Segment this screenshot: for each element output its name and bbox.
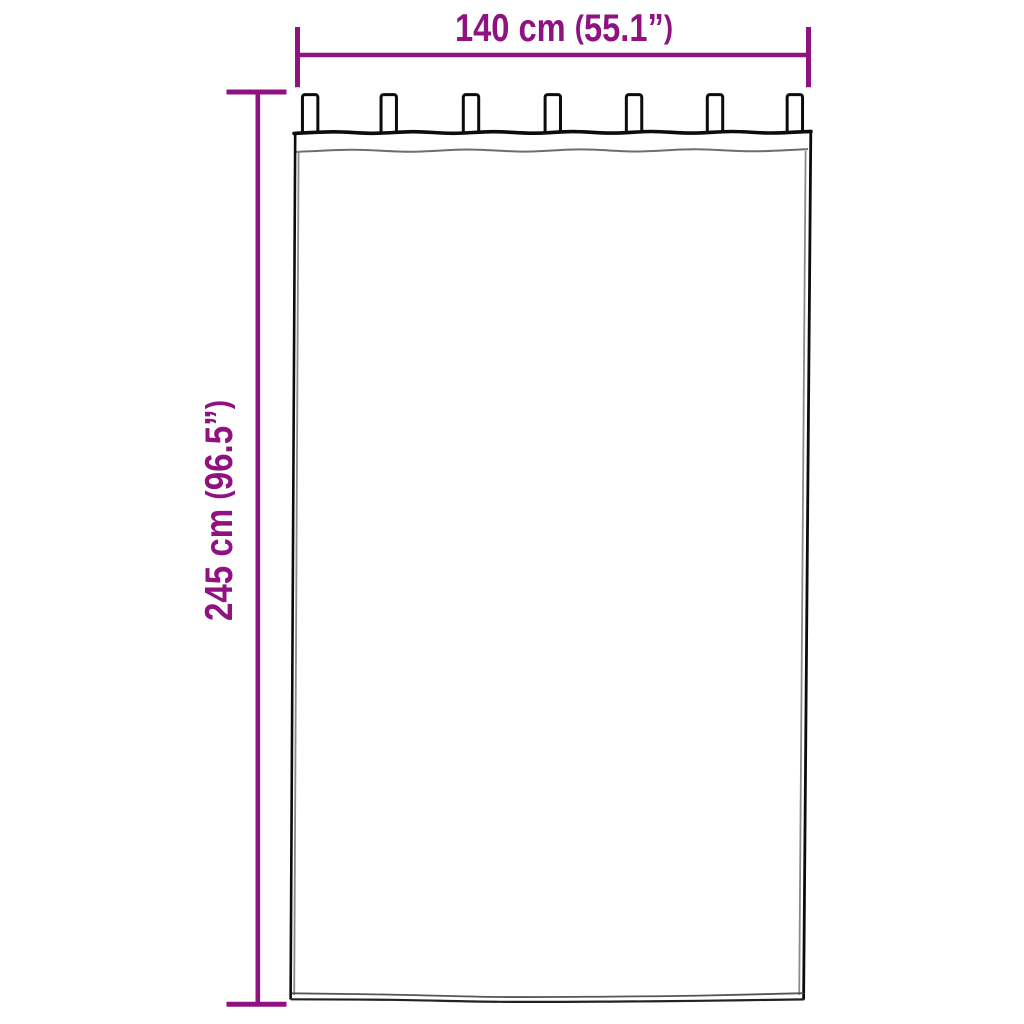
svg-text:245 cm (96.5”): 245 cm (96.5”) [198, 400, 241, 621]
svg-text:140 cm (55.1”): 140 cm (55.1”) [455, 7, 673, 50]
